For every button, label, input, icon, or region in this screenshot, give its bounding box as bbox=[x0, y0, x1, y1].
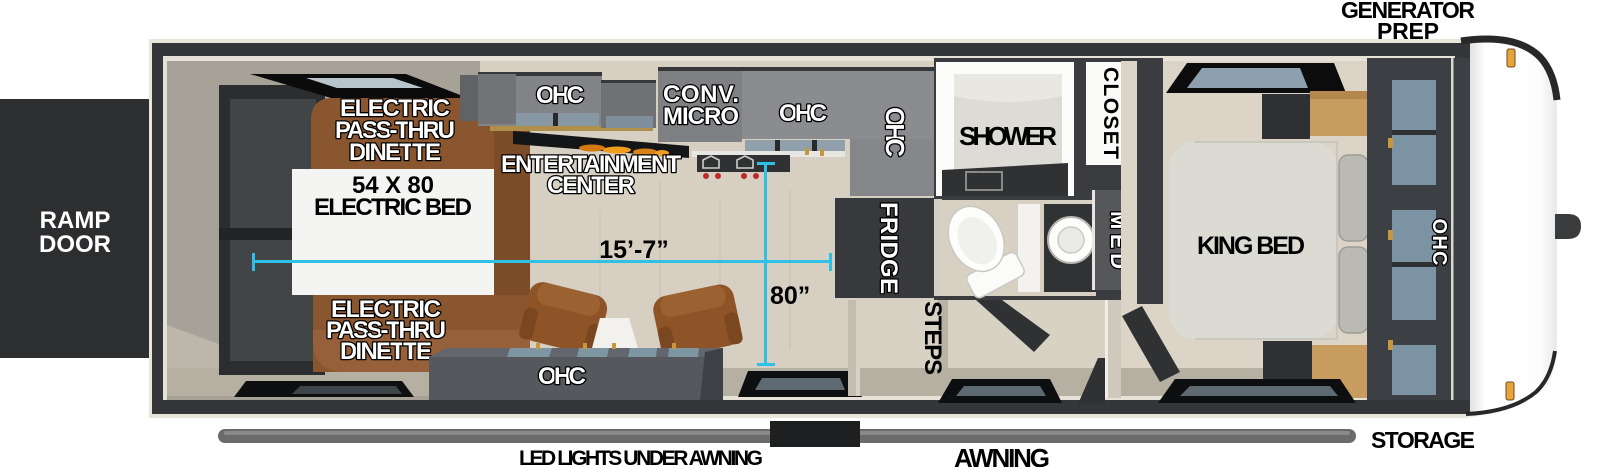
svg-text:LED LIGHTS UNDER AWNING: LED LIGHTS UNDER AWNING bbox=[519, 447, 763, 467]
svg-text:STORAGE: STORAGE bbox=[1371, 427, 1475, 453]
svg-text:SHOWER: SHOWER bbox=[959, 121, 1057, 151]
svg-text:RAMP: RAMP bbox=[40, 207, 111, 234]
svg-text:MICRO: MICRO bbox=[663, 103, 739, 130]
svg-text:DINETTE: DINETTE bbox=[349, 139, 441, 166]
svg-text:PREP: PREP bbox=[1377, 18, 1439, 44]
svg-text:15’-7”: 15’-7” bbox=[599, 236, 668, 264]
svg-text:OHC: OHC bbox=[536, 82, 584, 109]
svg-text:80”: 80” bbox=[770, 282, 810, 310]
svg-text:FRIDGE: FRIDGE bbox=[875, 202, 902, 294]
svg-text:AWNING: AWNING bbox=[954, 443, 1050, 467]
svg-text:OHC: OHC bbox=[880, 107, 910, 157]
svg-text:KING BED: KING BED bbox=[1197, 232, 1305, 260]
svg-text:OHC: OHC bbox=[1428, 219, 1450, 266]
svg-text:CLOSET: CLOSET bbox=[1099, 67, 1122, 159]
svg-text:STEPS: STEPS bbox=[919, 301, 946, 375]
svg-text:CENTER: CENTER bbox=[547, 172, 635, 199]
svg-text:ELECTRIC BED: ELECTRIC BED bbox=[314, 194, 472, 221]
svg-text:OHC: OHC bbox=[779, 100, 827, 127]
svg-text:OHC: OHC bbox=[538, 363, 586, 390]
svg-text:DINETTE: DINETTE bbox=[340, 338, 432, 365]
svg-text:DOOR: DOOR bbox=[39, 231, 111, 258]
